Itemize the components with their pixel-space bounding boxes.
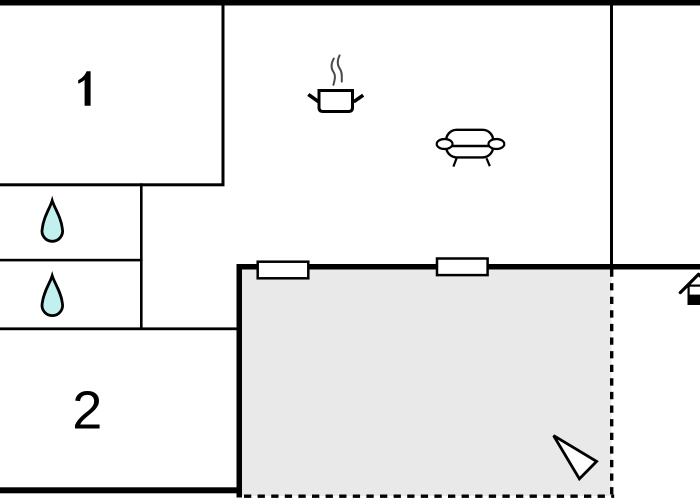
svg-text:2: 2: [72, 381, 102, 441]
